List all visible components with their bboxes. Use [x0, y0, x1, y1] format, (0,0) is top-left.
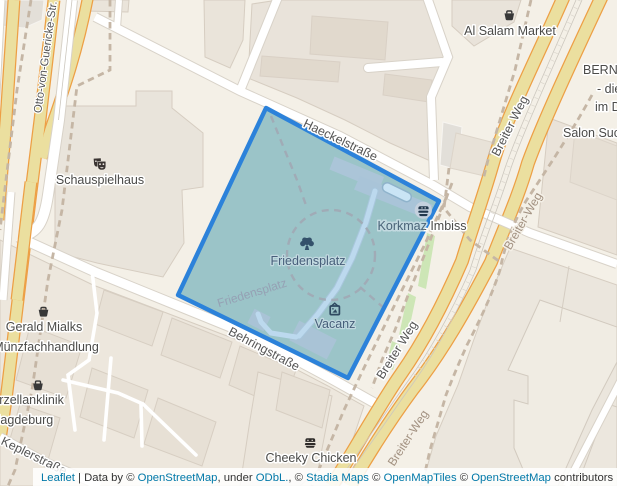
svg-text:Leaflet | Data by © OpenStreet: Leaflet | Data by © OpenStreetMap, under… [41, 472, 613, 484]
svg-text:Gerald Mialks: Gerald Mialks [6, 320, 82, 334]
svg-text:Al Salam Market: Al Salam Market [464, 24, 556, 38]
svg-text:Friedensplatz: Friedensplatz [270, 254, 345, 268]
svg-text:Salon Suc: Salon Suc [563, 126, 617, 140]
svg-text:Porzellanklinik: Porzellanklinik [0, 393, 65, 407]
svg-text:- die: - die [597, 82, 617, 96]
svg-text:Magdeburg: Magdeburg [0, 413, 53, 427]
svg-text:Cheeky Chicken: Cheeky Chicken [265, 451, 356, 465]
svg-text:im D: im D [595, 100, 617, 114]
svg-text:Münzfachhandlung: Münzfachhandlung [0, 340, 99, 354]
svg-text:Vacanz: Vacanz [315, 317, 356, 331]
svg-text:Schauspielhaus: Schauspielhaus [56, 173, 144, 187]
svg-text:BERNE: BERNE [583, 63, 617, 77]
